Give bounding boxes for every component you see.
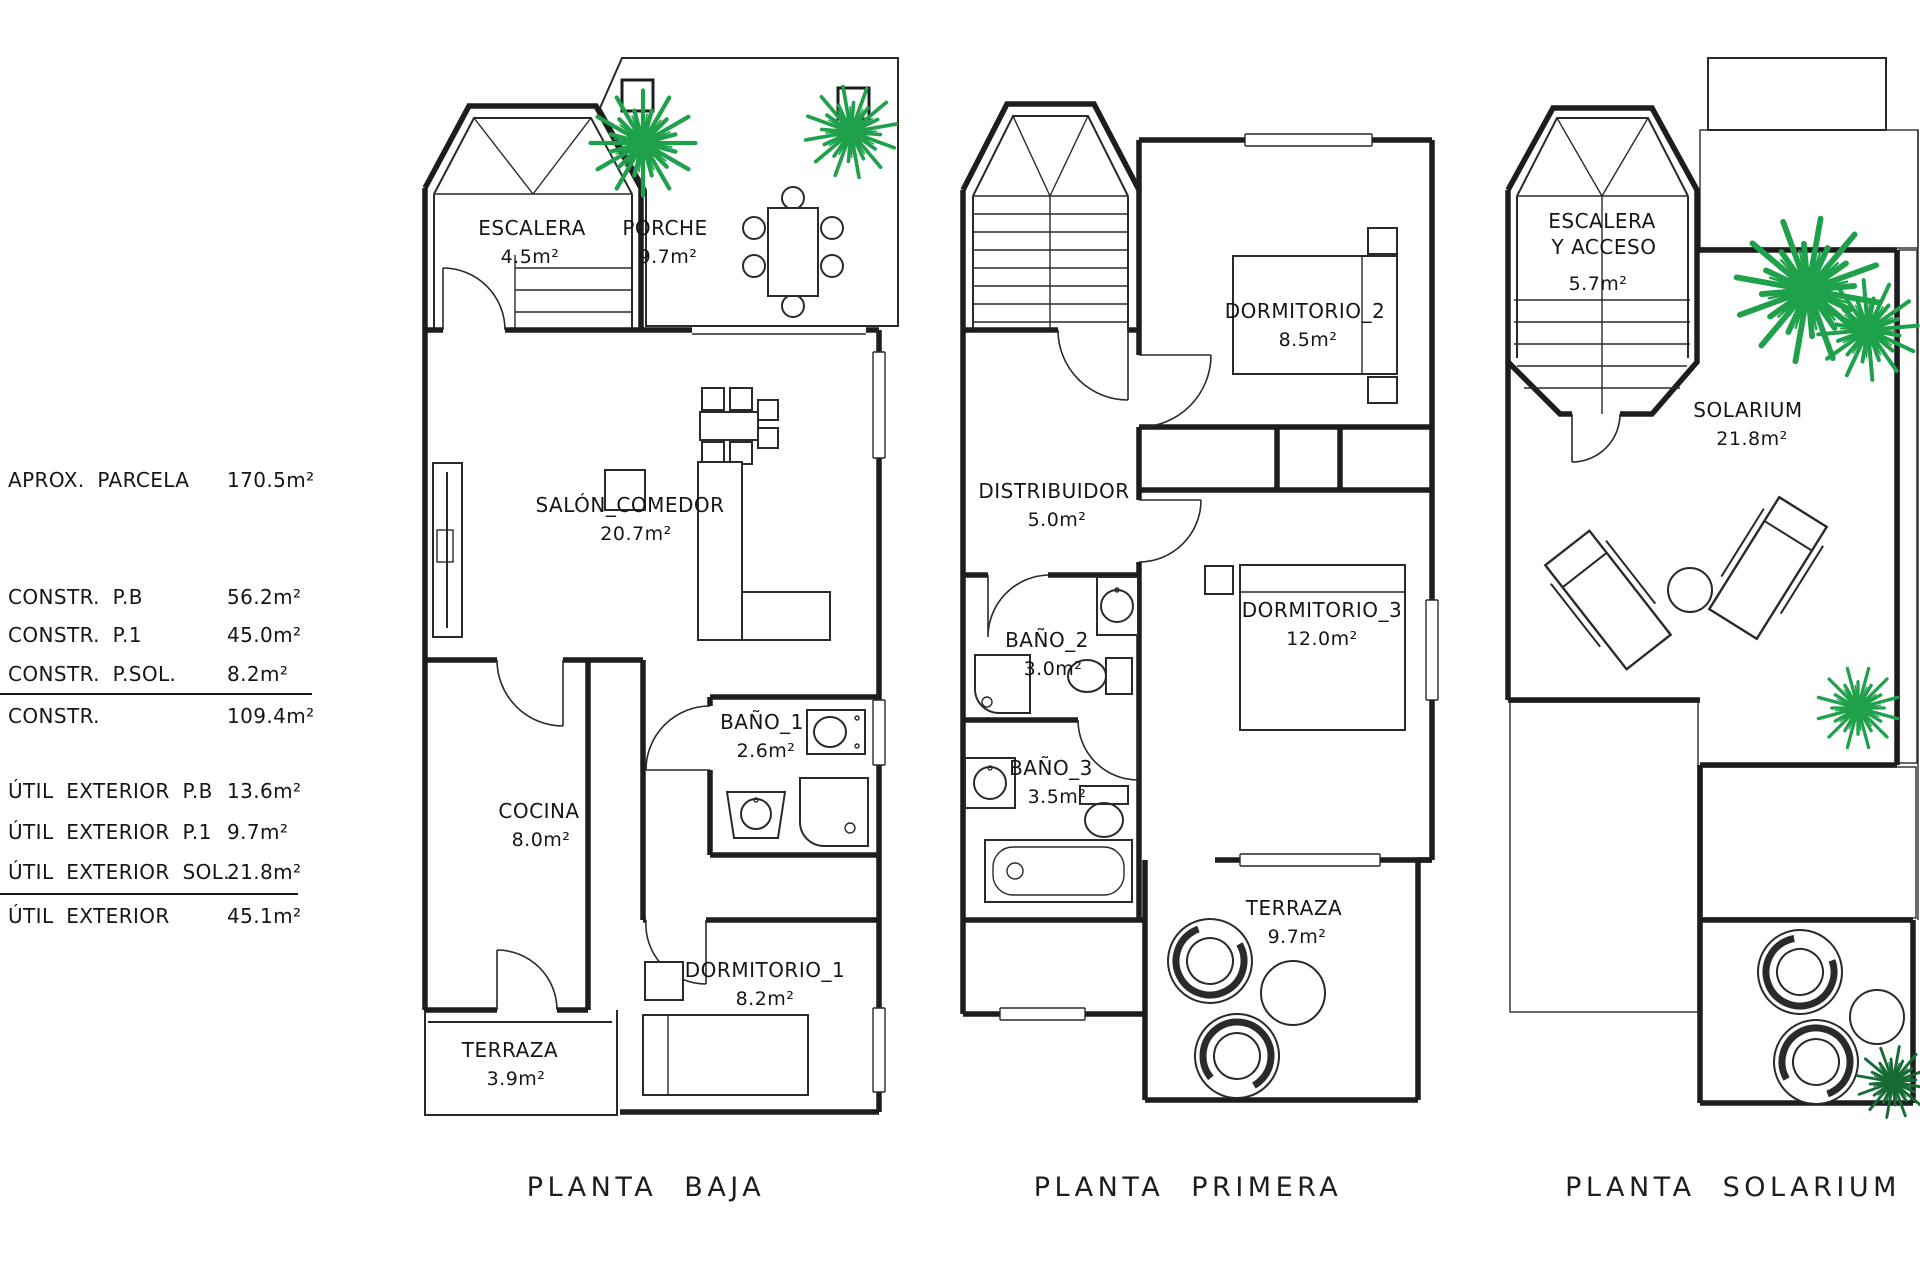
palm-plant-icon bbox=[1808, 658, 1908, 758]
room-label: PORCHE bbox=[622, 216, 707, 240]
stair-tower bbox=[1508, 108, 1697, 414]
room-area: 4.5m² bbox=[501, 246, 560, 268]
sink bbox=[727, 792, 785, 838]
roof-tiles bbox=[1700, 130, 1918, 248]
tv-unit bbox=[433, 463, 462, 637]
floor-plan-sheet: APROX. PARCELA 170.5m² CONSTR. P.B 56.2m… bbox=[0, 0, 1920, 1280]
room-label: SOLARIUM bbox=[1693, 398, 1802, 422]
room-label: DORMITORIO_1 bbox=[685, 958, 845, 982]
porch-dining-set bbox=[743, 187, 843, 317]
plan-caption: PLANTA PRIMERA bbox=[928, 1172, 1448, 1203]
toilet bbox=[807, 710, 865, 754]
room-area: 8.2m² bbox=[736, 988, 795, 1010]
room-area: 3.9m² bbox=[487, 1068, 546, 1090]
room-area: 21.8m² bbox=[1716, 428, 1787, 450]
room-area: 5.0m² bbox=[1028, 509, 1087, 531]
shower bbox=[975, 655, 1030, 713]
toilet bbox=[1080, 786, 1128, 837]
plan-planta-solarium: ESCALERA Y ACCESO 5.7m² SOLARIUM 21.8m² bbox=[1508, 58, 1920, 1133]
room-label: SALÓN_COMEDOR bbox=[535, 493, 724, 517]
sofa bbox=[605, 462, 830, 640]
sun-loungers bbox=[1540, 493, 1833, 673]
staircase bbox=[963, 104, 1139, 330]
plan-caption: PLANTA SOLARIUM bbox=[1473, 1172, 1920, 1203]
room-area: 8.0m² bbox=[512, 829, 571, 851]
room-area: 5.7m² bbox=[1569, 273, 1628, 295]
shower bbox=[800, 778, 868, 846]
room-label: DORMITORIO_2 bbox=[1225, 299, 1385, 323]
plan-caption: PLANTA BAJA bbox=[386, 1172, 906, 1203]
room-label: BAÑO_2 bbox=[1005, 628, 1089, 652]
room-area: 8.5m² bbox=[1279, 329, 1338, 351]
room-label: TERRAZA bbox=[1245, 896, 1342, 920]
plans-drawing: ESCALERA 4.5m² PORCHE 9.7m² SALÓN_COMEDO… bbox=[0, 0, 1920, 1280]
room-area: 9.7m² bbox=[1268, 926, 1327, 948]
room-area: 20.7m² bbox=[600, 523, 671, 545]
sink bbox=[1097, 577, 1138, 635]
plan-planta-baja: ESCALERA 4.5m² PORCHE 9.7m² SALÓN_COMEDO… bbox=[425, 58, 910, 1115]
palm-plant-icon bbox=[591, 91, 696, 196]
roof-tiles bbox=[1510, 702, 1698, 1012]
sink bbox=[965, 758, 1015, 808]
room-label: BAÑO_3 bbox=[1009, 756, 1093, 780]
room-area: 3.5m² bbox=[1028, 786, 1087, 808]
porch-post bbox=[622, 80, 653, 111]
room-label: DISTRIBUIDOR bbox=[978, 479, 1129, 503]
room-label: BAÑO_1 bbox=[720, 710, 804, 734]
room-area: 2.6m² bbox=[737, 740, 796, 762]
plan-planta-primera: DORMITORIO_2 8.5m² DISTRIBUIDOR 5.0m² BA… bbox=[963, 104, 1438, 1115]
room-label: COCINA bbox=[498, 799, 579, 823]
salon-dining-set bbox=[700, 388, 778, 464]
room-label: ESCALERA bbox=[1548, 209, 1656, 233]
room-label: ESCALERA bbox=[478, 216, 586, 240]
room-area: 12.0m² bbox=[1286, 628, 1357, 650]
bathtub bbox=[985, 840, 1132, 902]
room-area: 9.7m² bbox=[639, 246, 698, 268]
room-label: TERRAZA bbox=[461, 1038, 558, 1062]
pergola-hatch bbox=[1708, 58, 1886, 130]
room-area: 3.0m² bbox=[1024, 658, 1083, 680]
roof-tiles bbox=[1702, 767, 1916, 918]
room-label: DORMITORIO_3 bbox=[1242, 598, 1402, 622]
room-label: Y ACCESO bbox=[1551, 235, 1657, 259]
